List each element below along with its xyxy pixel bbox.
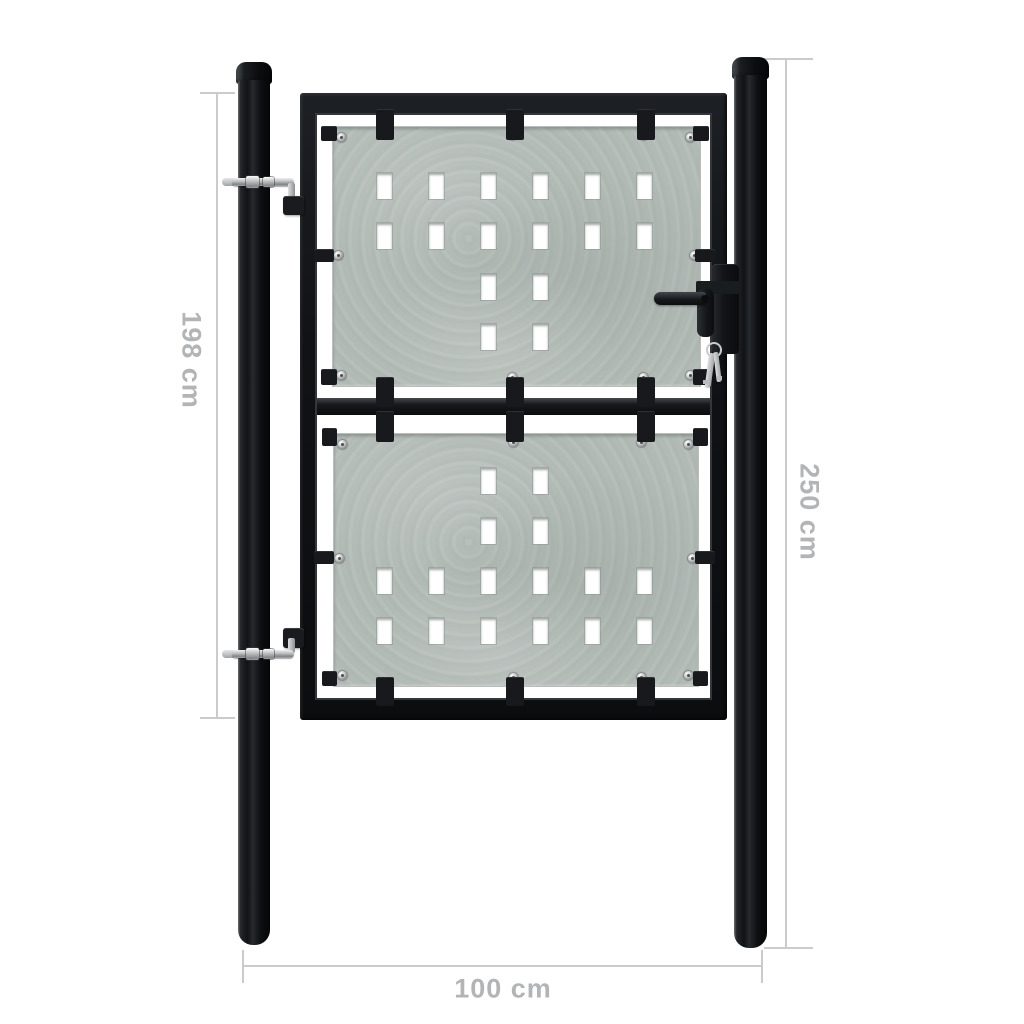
panel-hole bbox=[377, 223, 392, 249]
panel-clip bbox=[695, 249, 715, 262]
panel-hole bbox=[481, 173, 496, 199]
dimension-bottom-line bbox=[243, 965, 762, 967]
panel-clip bbox=[314, 551, 334, 564]
panel-clip bbox=[695, 551, 715, 564]
panel-hole bbox=[429, 568, 444, 594]
panel-hole bbox=[533, 324, 548, 350]
dimension-left-label: 198 cm bbox=[176, 311, 207, 409]
panel-clip bbox=[322, 428, 337, 446]
panel-hole bbox=[481, 223, 496, 249]
panel-hole bbox=[481, 324, 496, 350]
panel-hole bbox=[585, 618, 600, 644]
panel-hole bbox=[429, 618, 444, 644]
panel-clip bbox=[376, 411, 394, 442]
panel-hole bbox=[637, 568, 652, 594]
panel-hole bbox=[481, 468, 496, 494]
key-bit bbox=[717, 376, 722, 380]
panel-screw bbox=[334, 251, 343, 260]
panel-hole bbox=[481, 518, 496, 544]
panel-hole bbox=[533, 468, 548, 494]
panel-clip bbox=[693, 671, 708, 686]
dimension-left-cap-top bbox=[200, 92, 235, 94]
panel-screw bbox=[337, 133, 346, 142]
panel-screw bbox=[338, 440, 347, 449]
gate-panel-upper bbox=[333, 127, 700, 386]
panel-screw bbox=[684, 671, 693, 680]
panel-hole bbox=[585, 223, 600, 249]
panel-clip bbox=[693, 428, 708, 446]
panel-screw bbox=[337, 371, 346, 380]
panel-hole bbox=[377, 568, 392, 594]
panel-hole bbox=[481, 618, 496, 644]
panel-hole bbox=[429, 173, 444, 199]
panel-hole bbox=[481, 274, 496, 300]
panel-clip bbox=[322, 671, 337, 686]
panel-clip bbox=[637, 677, 655, 706]
panel-hole bbox=[637, 223, 652, 249]
left-post bbox=[238, 80, 270, 945]
dimension-right-cap-bottom bbox=[764, 947, 813, 949]
panel-hole bbox=[533, 518, 548, 544]
gate-panel-lower bbox=[334, 434, 698, 686]
hinge-nut bbox=[246, 176, 259, 188]
panel-hole bbox=[585, 568, 600, 594]
panel-clip bbox=[637, 411, 655, 442]
panel-clip bbox=[506, 677, 524, 706]
lock-body bbox=[712, 264, 739, 354]
panel-hole bbox=[637, 173, 652, 199]
key-bit bbox=[703, 380, 708, 384]
panel-screw bbox=[338, 671, 347, 680]
panel-hole bbox=[377, 173, 392, 199]
panel-hole bbox=[481, 568, 496, 594]
panel-clip bbox=[376, 377, 394, 407]
panel-clip bbox=[506, 377, 524, 407]
dimension-right-line bbox=[785, 59, 787, 949]
panel-clip bbox=[321, 369, 337, 385]
panel-hole bbox=[533, 618, 548, 644]
handle-pivot bbox=[701, 295, 709, 303]
dimension-left-line bbox=[216, 93, 218, 719]
handle-lever bbox=[654, 292, 706, 305]
panel-hole bbox=[377, 618, 392, 644]
hinge-nut bbox=[263, 649, 274, 659]
panel-clip bbox=[376, 109, 394, 140]
panel-clip bbox=[506, 109, 524, 140]
dimension-bottom-cap-right bbox=[761, 950, 763, 983]
panel-screw bbox=[684, 440, 693, 449]
hinge-nut bbox=[246, 648, 259, 660]
panel-hole bbox=[533, 568, 548, 594]
panel-hole bbox=[533, 274, 548, 300]
panel-hole bbox=[533, 223, 548, 249]
panel-hole bbox=[585, 173, 600, 199]
panel-clip bbox=[321, 126, 337, 141]
panel-hole bbox=[429, 223, 444, 249]
panel-clip bbox=[637, 109, 655, 140]
panel-clip bbox=[506, 411, 524, 442]
dimension-left-cap-bottom bbox=[200, 717, 235, 719]
dimension-right-label: 250 cm bbox=[794, 463, 825, 561]
panel-clip bbox=[637, 377, 655, 407]
gate-product-image: 198 cm 250 cm 100 cm bbox=[0, 0, 1024, 1024]
dimension-bottom-label: 100 cm bbox=[454, 974, 552, 1005]
panel-clip bbox=[693, 126, 709, 141]
right-post bbox=[734, 75, 767, 948]
panel-clip bbox=[314, 249, 334, 262]
hinge-nut bbox=[263, 177, 274, 187]
panel-screw bbox=[335, 554, 344, 563]
dimension-bottom-cap-left bbox=[242, 950, 244, 983]
panel-hole bbox=[637, 618, 652, 644]
panel-clip bbox=[376, 677, 394, 706]
hinge-bracket bbox=[283, 196, 304, 215]
panel-hole bbox=[533, 173, 548, 199]
